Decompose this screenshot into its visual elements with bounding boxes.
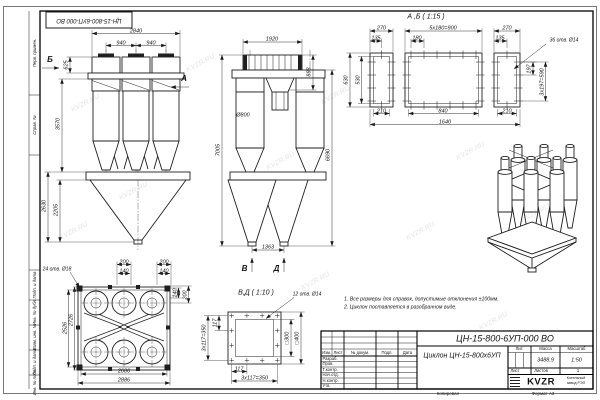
company-name-line2: завод РЭП [567, 382, 586, 386]
dim-2886: 2886 [118, 378, 130, 384]
dim-2686: 2686 [118, 369, 130, 375]
dim-5x180: 5х180=900 [429, 26, 456, 32]
dim-3570: 3570 [56, 118, 62, 130]
dim-210-left: 210 [377, 109, 386, 115]
col-izm: Изм. [322, 350, 331, 354]
side-view-drawing [219, 39, 336, 272]
col-list: Лист [333, 350, 342, 354]
dim-3x117-bottom: 3х117=350 [241, 376, 268, 382]
mass-value: 3488,9 [537, 358, 554, 364]
format-label: Формат А3 [532, 392, 555, 397]
holes-note-24: 24 отв. Ø18 [43, 267, 72, 272]
sheets-label: Листов [534, 369, 548, 373]
dim-940-1: 940 [116, 41, 125, 47]
sheet-label: Лист [510, 369, 519, 373]
dim-270-left: 270 [377, 26, 386, 32]
iso-back-cyclones [511, 144, 577, 228]
lit-label: Лит. [516, 347, 524, 351]
col-docnum: № докум. [351, 350, 369, 354]
dim-2630: 2630 [42, 200, 48, 212]
mass-label: Масса [539, 347, 551, 351]
dim-200-b: 200 [159, 260, 168, 266]
dim-135-right: 135 [495, 36, 504, 42]
dim-135-left: 135 [371, 36, 380, 42]
holes-note-12: 12 отв. Ø14 [293, 292, 322, 297]
sheets-value: 1 [577, 369, 580, 374]
dim-3x197: 3х197=590 [540, 68, 546, 95]
cyclone-circles [81, 288, 167, 367]
dim-140-b: 140 [159, 269, 168, 275]
margin-label-podp-data-1: Подп. и дата [32, 272, 36, 299]
dim-180: 180 [412, 36, 421, 42]
section-label-d: Д [274, 265, 280, 273]
dim-530: 530 [356, 75, 362, 84]
dim-840: 840 [438, 109, 447, 115]
bolt-hole-marks [230, 314, 280, 363]
company-name-line1: Котельный [567, 377, 586, 381]
dim-630: 630 [344, 75, 350, 84]
margin-label-vzam-inv: Взам. инв. № [32, 324, 36, 351]
dim-200-a: 200 [119, 260, 128, 266]
margin-label-sprav: Справ. № [32, 115, 36, 135]
margin-label-inv-dubl: Инв. № дубл. [32, 299, 36, 325]
dim-197: 197 [527, 64, 533, 73]
dim-888: 888 [307, 67, 313, 76]
holes-note-36: 36 отв. Ø14 [550, 39, 579, 44]
dim-117-bottom: 117 [235, 367, 244, 373]
scale-label: Масштаб [568, 347, 586, 351]
dim-dia-800: Ø800 [236, 113, 249, 119]
dim-270-right: 270 [502, 26, 511, 32]
dim-2840: 2840 [130, 29, 142, 35]
dim-2726: 2726 [69, 314, 75, 326]
dim-1640: 1640 [439, 120, 451, 126]
dim-140-right: 140 [173, 288, 179, 297]
section-label-b: Б [47, 56, 53, 64]
scale-value: 1:50 [571, 358, 582, 364]
dim-210-right: 210 [502, 109, 511, 115]
note-line-2: 2. Циклон поставляется в разобранном вид… [344, 305, 457, 310]
dim-940-2: 940 [146, 41, 155, 47]
col-podp: Подп. [381, 350, 392, 354]
dim-6690: 6690 [326, 149, 332, 161]
view-vd-title: В,Д ( 1:10 ) [238, 290, 274, 297]
dim-7005: 7005 [216, 144, 222, 156]
margin-label-perv-primen: Перв. примен. [32, 39, 36, 68]
top-view-drawing [67, 262, 192, 386]
company-logo-text: KVZR [527, 377, 555, 387]
dim-1363: 1363 [262, 245, 274, 251]
isometric-view-drawing [488, 144, 577, 272]
row-utv: Утв. [323, 384, 331, 388]
dim-1920: 1920 [266, 37, 278, 43]
dim-117-left: 117 [213, 319, 219, 328]
view-ab-title: А ,Б ( 1:15 ) [407, 14, 444, 21]
section-label-v: В [242, 265, 248, 273]
dim-625: 625 [64, 60, 70, 69]
product-name: Циклон ЦН-15-800х6УП [423, 352, 500, 359]
dim-200-right: 200 [183, 290, 189, 299]
dim-square-400: □400 [295, 332, 301, 345]
copied-label: Копировал [437, 392, 460, 397]
drawing-sheet: KVZR.RU KVZR.RU KVZR.RU KVZR.RU KVZR.RU … [0, 0, 600, 400]
dim-square-300: □300 [285, 332, 291, 345]
note-line-1: 1. Все размеры для справок, допустимые о… [344, 297, 499, 302]
dim-140-a: 140 [119, 269, 128, 275]
dim-3x117-left: 3х117=350 [202, 325, 208, 352]
col-data: Дата [403, 350, 412, 354]
top-left-stamp: ЦН-15-800-6УП-000 ВО [56, 17, 121, 23]
doc-number: ЦН-15-800-6УП-000 ВО [456, 334, 554, 343]
section-label-a: А [181, 75, 187, 83]
coil-logo-icon [510, 378, 520, 387]
margin-label-inv-podl: Инв. № подл. [32, 369, 36, 396]
dim-2205: 2205 [54, 204, 60, 216]
